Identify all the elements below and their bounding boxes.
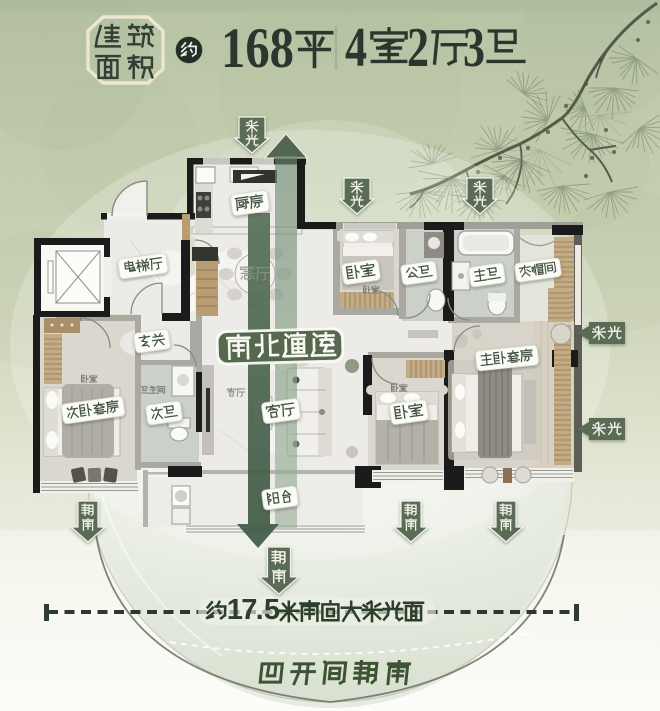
svg-text:.: . xyxy=(256,594,264,626)
svg-text:3: 3 xyxy=(463,17,485,79)
svg-text:4: 4 xyxy=(345,17,367,79)
svg-text:168: 168 xyxy=(221,17,294,80)
svg-text:2: 2 xyxy=(407,17,429,79)
svg-text:5: 5 xyxy=(264,594,280,626)
